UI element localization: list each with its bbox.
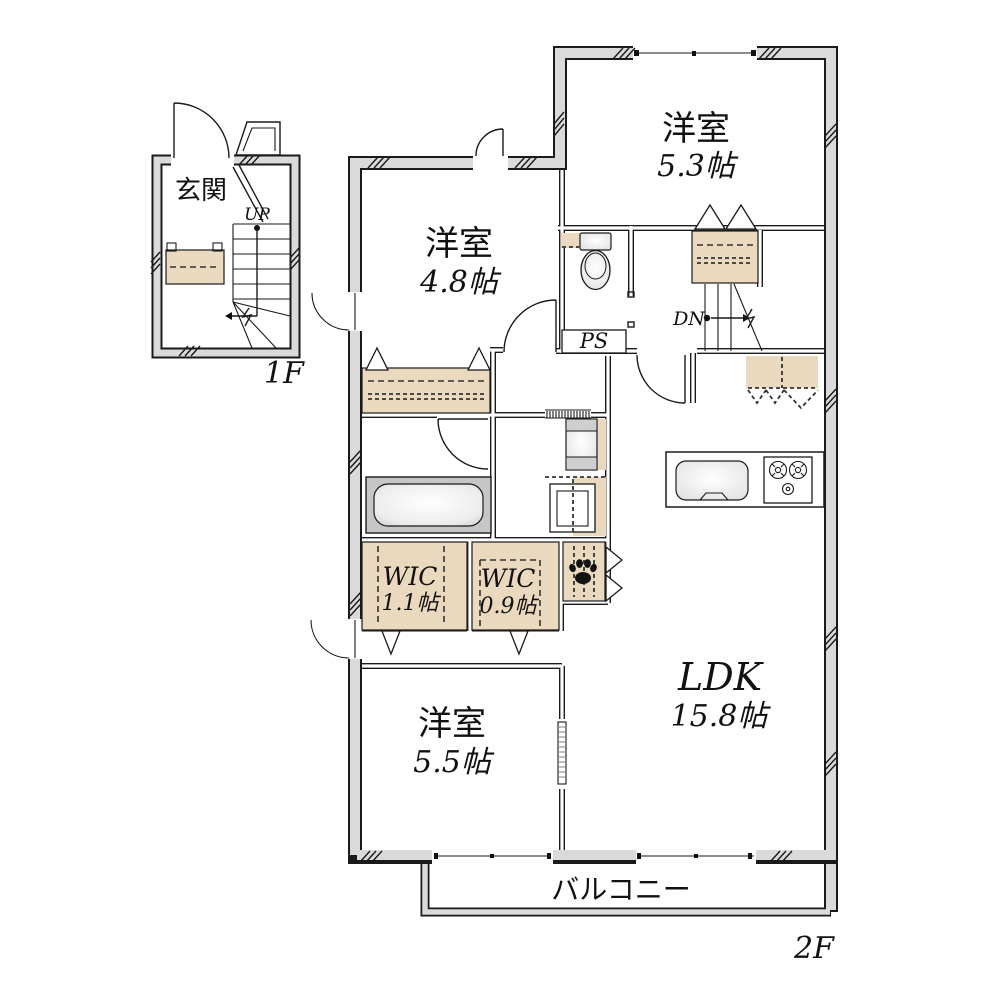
bedroom-nw-size: 4.8帖 <box>419 265 502 300</box>
wic-b-size: 0.9帖 <box>480 594 540 619</box>
pet-storage-strip <box>563 542 605 601</box>
door-bathroom <box>438 419 488 469</box>
kitchen-sink <box>676 461 748 500</box>
door-opening-entrance <box>171 154 234 166</box>
floor-plan-svg: 玄関 UP 1F 洋室 5.3帖 洋室 4.8帖 PS DN WIC 1.1帖 … <box>0 0 1000 1000</box>
stairs-down-label: DN <box>672 308 706 330</box>
fixtures <box>236 122 824 535</box>
wic-a-name: WIC <box>383 562 438 591</box>
ldk-size: 15.8帖 <box>671 699 772 734</box>
toilet <box>580 233 611 290</box>
bay-window-1f <box>236 122 280 155</box>
pipe-space-label: PS <box>579 329 609 353</box>
closet-nw-bedroom <box>362 368 490 413</box>
stove <box>764 457 812 503</box>
balcony-label: バルコニー <box>551 873 690 906</box>
staircase-1f <box>225 165 290 348</box>
door-ldk <box>637 355 685 403</box>
bedroom-nw-name: 洋室 <box>425 224 493 264</box>
staircase-2f <box>704 284 762 351</box>
stairs-up-label: UP <box>244 205 270 225</box>
floor-plan: 玄関 UP 1F 洋室 5.3帖 洋室 4.8帖 PS DN WIC 1.1帖 … <box>0 0 1000 1000</box>
bedroom-ne-size: 5.3帖 <box>657 149 739 184</box>
wic-a-size: 1.1帖 <box>382 591 442 616</box>
floor2-label: 2F <box>793 931 835 966</box>
kitchen-counter <box>666 452 824 507</box>
bedroom-sw-name: 洋室 <box>418 704 486 744</box>
door-opening-north <box>473 156 508 171</box>
floor1-label: 1F <box>264 356 305 391</box>
washbasin <box>566 419 606 470</box>
door-nw-bedroom <box>504 300 556 352</box>
bathtub <box>374 484 483 526</box>
genkan-label: 玄関 <box>175 176 227 206</box>
bedroom-ne-name: 洋室 <box>662 109 730 149</box>
toilet-shelf <box>561 233 580 248</box>
door-entrance <box>174 103 229 158</box>
bedroom-sw-size: 5.5帖 <box>413 745 495 780</box>
wic-b-name: WIC <box>481 564 536 593</box>
closet-ne-bedroom <box>692 231 758 283</box>
ldk-name: LDK <box>677 655 765 699</box>
